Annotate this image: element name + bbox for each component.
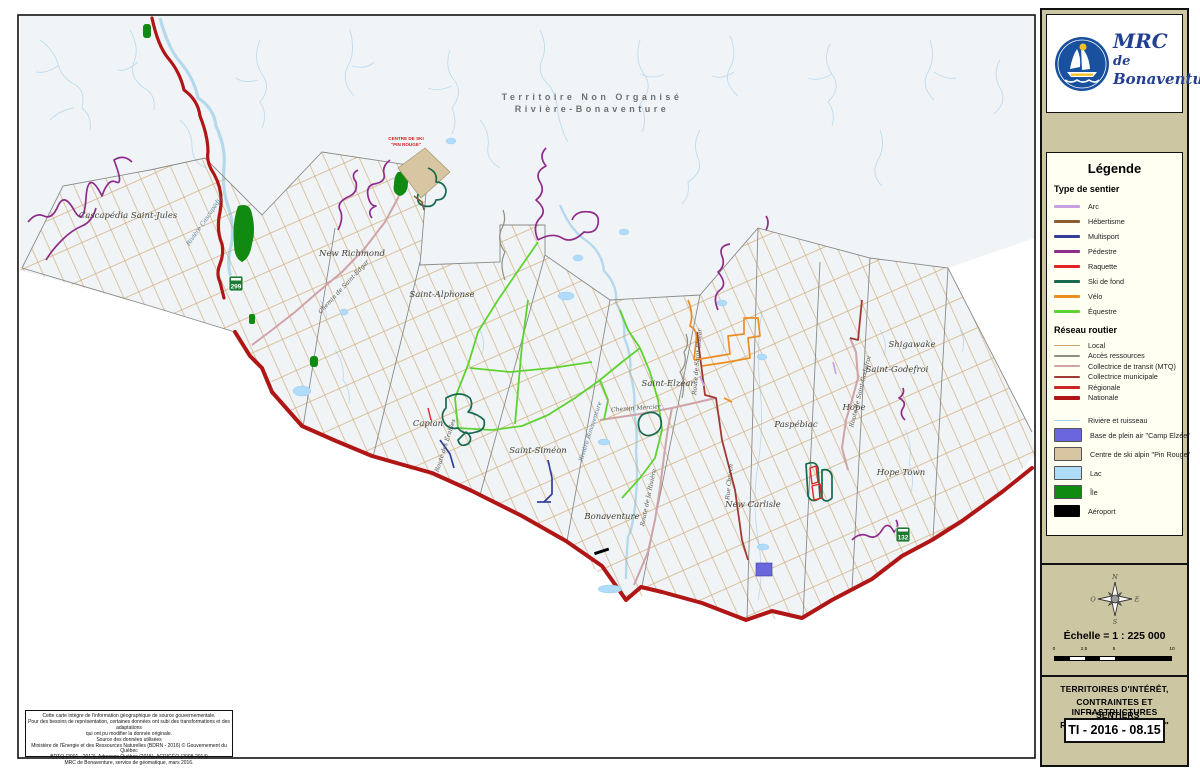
map-title-line1: TERRITOIRES D'INTÉRÊT,	[1042, 684, 1187, 694]
attribution-line: MRC de Bonaventure, service de géomatiqu…	[26, 761, 232, 767]
legend-label: Vélo	[1088, 292, 1102, 301]
legend-label: Collectrice municipale	[1088, 372, 1158, 381]
aeroport-swatch	[1054, 505, 1080, 517]
label-saint-godefroi: Saint-Godefroi	[866, 365, 929, 375]
attribution-box: Cette carte intègre de l'information géo…	[25, 710, 233, 757]
compass-e: E	[1134, 596, 1140, 604]
legend-item-nationale: Nationale	[1054, 393, 1175, 404]
legend-box: Légende Type de sentier Arc Hébertisme M…	[1046, 152, 1183, 536]
raquette-line-swatch	[1054, 265, 1080, 268]
scale-text: Échelle = 1 : 225 000	[1042, 630, 1187, 642]
compass-s: S	[1113, 618, 1118, 626]
legend-item-ile: Île	[1054, 483, 1175, 502]
map-canvas: 299 132 Territoire Non Organisé Rivière-…	[0, 0, 1200, 776]
collectrice-municipale-swatch	[1054, 376, 1080, 379]
scale-tick: 2,5	[1081, 647, 1088, 652]
ski-center-label-line2: "PIN ROUGE"	[391, 142, 421, 147]
acces-ressources-swatch	[1054, 355, 1080, 357]
label-cascapedia: Cascapédia Saint-Jules	[79, 210, 178, 221]
label-new-carlisle: New Carlisle	[724, 500, 781, 510]
map-margin-panel: MRC de Bonaventure Légende Type de senti…	[1040, 8, 1189, 767]
legend-label: Multisport	[1088, 232, 1119, 241]
hebertisme-line-swatch	[1054, 220, 1080, 223]
legend-label: Collectrice de transit (MTQ)	[1088, 362, 1176, 371]
legend-label: Arc	[1088, 202, 1099, 211]
scale-ticks: 0 2,5 5 10	[1054, 647, 1172, 655]
legend-label: Centre de ski alpin "Pin Rouge"	[1090, 450, 1190, 459]
velo-line-swatch	[1054, 295, 1080, 298]
label-saint-alphonse: Saint-Alphonse	[409, 290, 474, 300]
equestre-line-swatch	[1054, 310, 1080, 313]
route-shield-299: 299	[229, 276, 243, 291]
panel-divider	[1042, 563, 1187, 565]
legend-item-collectrice-municipale: Collectrice municipale	[1054, 372, 1175, 383]
territory-label-line2: Rivière-Bonaventure	[515, 104, 670, 114]
legend-label: Régionale	[1088, 383, 1120, 392]
compass-w: O	[1090, 596, 1096, 604]
ski-de-fond-line-swatch	[1054, 280, 1080, 283]
legend-item-raquette: Raquette	[1054, 259, 1175, 274]
label-shigawake: Shigawake	[888, 340, 935, 350]
legend-section-roads: Réseau routier	[1054, 325, 1175, 335]
legend-label: Local	[1088, 341, 1105, 350]
legend-title: Légende	[1054, 161, 1175, 176]
local-road-swatch	[1054, 345, 1080, 346]
logo-text: MRC de Bonaventure	[1113, 29, 1200, 89]
legend-label: Base de plein air "Camp Elzée"	[1090, 431, 1190, 440]
camp-elzee-swatch	[1054, 428, 1082, 442]
attribution-line: Pour des besoins de représentation, cert…	[26, 720, 232, 732]
label-bonaventure: Bonaventure	[583, 512, 639, 522]
camp-elzee-polygon	[756, 563, 772, 576]
panel-divider	[1042, 675, 1187, 677]
label-saint-elzear: Saint-Elzéar	[642, 378, 696, 389]
arc-line-swatch	[1054, 205, 1080, 208]
legend-label: Lac	[1090, 469, 1102, 478]
legend-label: Rivière et ruisseau	[1088, 416, 1148, 425]
legend-item-multisport: Multisport	[1054, 229, 1175, 244]
org-name-line3: Bonaventure	[1113, 70, 1200, 89]
legend-item-arc: Arc	[1054, 199, 1175, 214]
legend-label: Aéroport	[1088, 507, 1116, 516]
nationale-swatch	[1054, 396, 1080, 400]
label-caplan: Caplan	[413, 419, 443, 429]
logo-box: MRC de Bonaventure	[1046, 14, 1183, 113]
legend-item-collectrice-transit: Collectrice de transit (MTQ)	[1054, 361, 1175, 372]
legend-label: Île	[1090, 488, 1098, 497]
legend-label: Ski de fond	[1088, 277, 1124, 286]
legend-item-pedestre: Pédestre	[1054, 244, 1175, 259]
ile-swatch	[1054, 485, 1082, 499]
scale-tick: 0	[1053, 647, 1056, 652]
legend-item-acces: Accès ressources	[1054, 351, 1175, 362]
legend-item-ski-alpin: Centre de ski alpin "Pin Rouge"	[1054, 445, 1175, 464]
territory-label-line1: Territoire Non Organisé	[502, 92, 683, 102]
scale-bar	[1054, 656, 1172, 661]
pedestre-line-swatch	[1054, 250, 1080, 253]
legend-label: Raquette	[1088, 262, 1117, 271]
legend-item-ski-de-fond: Ski de fond	[1054, 274, 1175, 289]
legend-item-aeroport: Aéroport	[1054, 502, 1175, 521]
scale-tick: 10	[1169, 647, 1174, 652]
legend-label: Pédestre	[1088, 247, 1117, 256]
legend-item-lac: Lac	[1054, 464, 1175, 483]
ski-alpin-swatch	[1054, 447, 1082, 461]
org-name-line2: de	[1113, 54, 1200, 70]
route-shield-299-number: 299	[231, 284, 242, 291]
collectrice-transit-swatch	[1054, 365, 1080, 367]
legend-item-local: Local	[1054, 340, 1175, 351]
lac-swatch	[1054, 466, 1082, 480]
map-sheet: 299 132 Territoire Non Organisé Rivière-…	[0, 0, 1200, 776]
compass-rose-icon: N E S O	[1085, 570, 1145, 628]
org-name-line1: MRC	[1113, 29, 1200, 54]
legend-label: Équestre	[1088, 307, 1117, 316]
legend-item-velo: Vélo	[1054, 289, 1175, 304]
multisport-line-swatch	[1054, 235, 1080, 238]
compass-n: N	[1111, 573, 1118, 581]
legend-label: Nationale	[1088, 393, 1118, 402]
riviere-line-swatch	[1054, 420, 1080, 421]
legend-item-regionale: Régionale	[1054, 382, 1175, 393]
legend-label: Hébertisme	[1088, 217, 1125, 226]
label-saint-simeon: Saint-Siméon	[509, 445, 567, 456]
legend-section-trails: Type de sentier	[1054, 184, 1175, 194]
regionale-swatch	[1054, 386, 1080, 389]
scale-tick: 5	[1113, 647, 1116, 652]
legend-item-camp-elzee: Base de plein air "Camp Elzée"	[1054, 426, 1175, 445]
legend-item-hebertisme: Hébertisme	[1054, 214, 1175, 229]
label-paspebiac: Paspébiac	[773, 419, 817, 430]
ski-center-label-line1: CENTRE DE SKI	[388, 136, 423, 141]
label-new-richmond: New Richmond	[318, 249, 385, 259]
route-shield-132: 132	[896, 527, 910, 542]
route-shield-132-number: 132	[898, 535, 909, 542]
mrc-bonaventure-logo-icon	[1053, 35, 1111, 93]
map-code-box: TI - 2016 - 08.15	[1064, 718, 1165, 743]
label-hope-town: Hope Town	[876, 468, 926, 478]
legend-item-riviere: Rivière et ruisseau	[1054, 415, 1175, 426]
legend-item-equestre: Équestre	[1054, 304, 1175, 319]
legend-label: Accès ressources	[1088, 351, 1145, 360]
ski-center-label: CENTRE DE SKI "PIN ROUGE"	[388, 136, 423, 147]
